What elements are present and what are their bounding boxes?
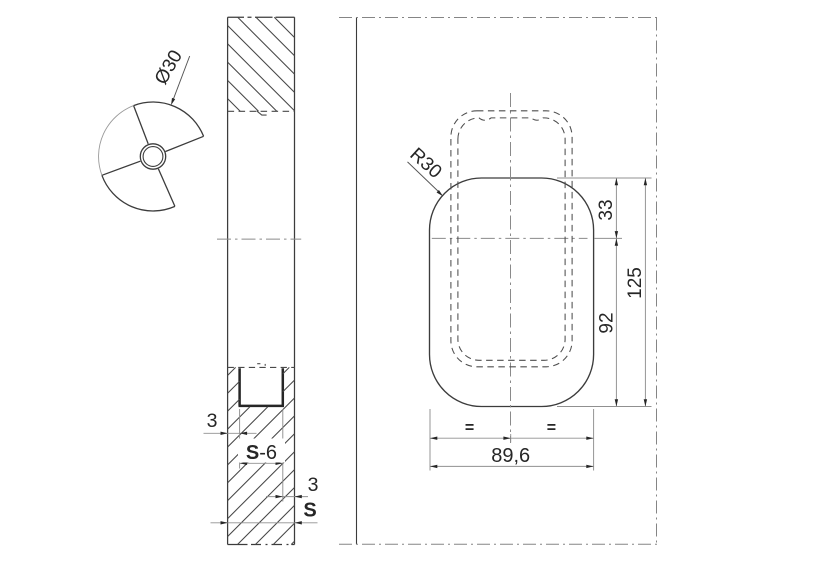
svg-text:3: 3 (207, 410, 218, 432)
svg-text:S: S (303, 500, 316, 522)
svg-text:92: 92 (597, 312, 618, 333)
svg-text:S-6: S-6 (246, 442, 277, 464)
svg-text:33: 33 (596, 199, 617, 220)
svg-text:=: = (547, 420, 556, 437)
svg-text:89,6: 89,6 (491, 445, 530, 467)
svg-text:125: 125 (625, 267, 646, 299)
svg-text:=: = (465, 420, 474, 437)
svg-text:3: 3 (308, 474, 319, 496)
